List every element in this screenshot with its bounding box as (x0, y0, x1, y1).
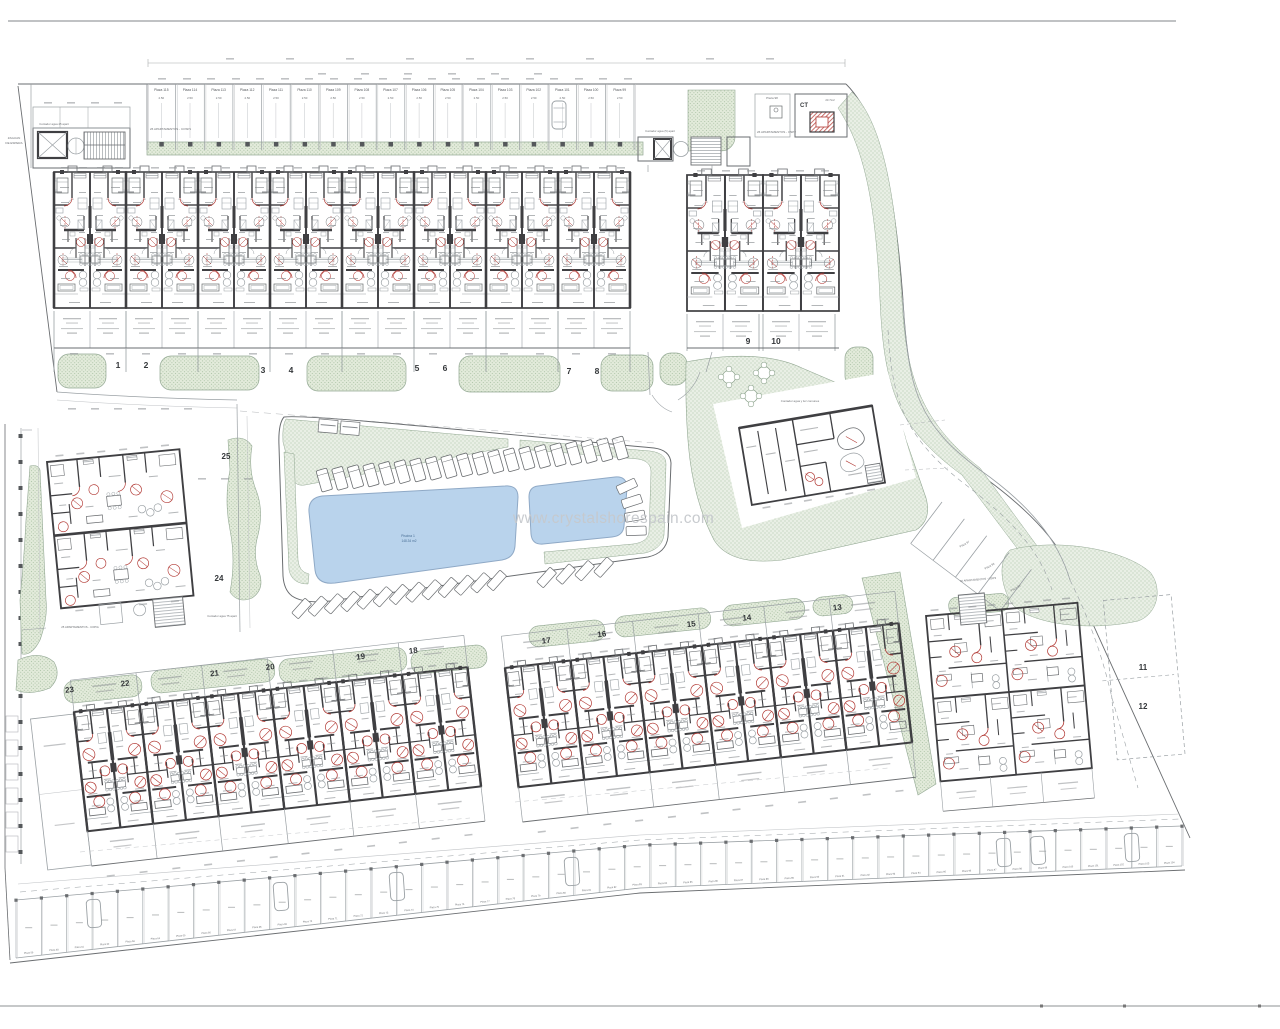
svg-text:Plaza 108: Plaza 108 (355, 88, 370, 92)
svg-text:2.50: 2.50 (302, 96, 308, 100)
svg-text:ZAGUAN: ZAGUAN (8, 136, 21, 140)
svg-text:Plaza 102: Plaza 102 (526, 88, 541, 92)
svg-text:3: 3 (261, 365, 266, 375)
svg-text:CT: CT (800, 103, 808, 109)
svg-text:22: 22 (120, 678, 130, 688)
svg-text:Plaza 66: Plaza 66 (201, 931, 211, 935)
svg-text:17: 17 (541, 636, 551, 646)
svg-text:Plaza 73: Plaza 73 (379, 911, 389, 915)
svg-text:2.50: 2.50 (359, 96, 365, 100)
svg-text:Plaza 76: Plaza 76 (455, 903, 465, 907)
svg-text:Plaza 93: Plaza 93 (886, 872, 896, 876)
svg-text:Plaza 70: Plaza 70 (303, 920, 313, 924)
svg-text:Plaza 78: Plaza 78 (506, 897, 516, 901)
svg-text:Plaza 111: Plaza 111 (269, 88, 283, 92)
svg-text:Plaza 87: Plaza 87 (734, 879, 744, 883)
svg-text:2.50: 2.50 (502, 96, 508, 100)
svg-text:14: 14 (742, 613, 752, 623)
svg-text:Plaza 59: Plaza 59 (24, 951, 34, 955)
svg-text:Plaza 107: Plaza 107 (383, 88, 398, 92)
svg-text:6: 6 (443, 363, 448, 373)
svg-text:Plaza 100: Plaza 100 (584, 88, 599, 92)
svg-text:Plaza 89: Plaza 89 (784, 877, 794, 881)
svg-text:Plaza 101: Plaza 101 (1088, 864, 1099, 868)
svg-text:Plaza 71: Plaza 71 (328, 917, 338, 921)
svg-text:Plaza 67: Plaza 67 (227, 928, 237, 932)
svg-text:Contador agua (5) apart: Contador agua (5) apart (645, 129, 675, 133)
svg-text:4: 4 (289, 365, 294, 375)
svg-text:Plaza 105: Plaza 105 (440, 88, 455, 92)
svg-text:Plaza 99: Plaza 99 (1038, 866, 1048, 870)
svg-text:Plaza 99: Plaza 99 (613, 88, 626, 92)
svg-text:25 APARTAMENTOS - COPIA: 25 APARTAMENTOS - COPIA (61, 625, 99, 629)
svg-text:Plaza 113: Plaza 113 (211, 88, 226, 92)
svg-text:Plaza 88: Plaza 88 (759, 878, 769, 882)
svg-text:2.50: 2.50 (445, 96, 451, 100)
svg-text:11: 11 (1139, 663, 1148, 672)
svg-text:Plaza 101: Plaza 101 (555, 88, 570, 92)
svg-text:Plaza 110: Plaza 110 (297, 88, 312, 92)
svg-text:Plaza 100: Plaza 100 (1063, 865, 1074, 869)
svg-text:DE ESPERA: DE ESPERA (5, 141, 22, 145)
svg-text:12: 12 (1139, 702, 1148, 711)
svg-text:Plaza 75: Plaza 75 (430, 906, 440, 910)
svg-text:Plaza 96: Plaza 96 (984, 562, 996, 571)
svg-text:Plaza 69: Plaza 69 (277, 923, 287, 927)
svg-text:23.7m2: 23.7m2 (825, 98, 835, 102)
svg-text:Contador agua 25 apart: Contador agua 25 apart (39, 122, 69, 126)
svg-text:2.50: 2.50 (474, 96, 480, 100)
svg-text:Plaza 114: Plaza 114 (183, 88, 198, 92)
svg-text:Plaza 106: Plaza 106 (412, 88, 427, 92)
svg-text:2.50: 2.50 (187, 96, 193, 100)
svg-text:Plaza 81: Plaza 81 (582, 889, 592, 893)
svg-text:26 APARTAMENTOS - OSP2: 26 APARTAMENTOS - OSP2 (757, 130, 796, 134)
svg-text:8: 8 (595, 366, 600, 376)
svg-text:2.50: 2.50 (588, 96, 594, 100)
svg-text:40 APARTAMENTOS - OSP3: 40 APARTAMENTOS - OSP3 (960, 576, 997, 583)
svg-text:Plaza 77: Plaza 77 (480, 900, 490, 904)
svg-text:Plaza 61: Plaza 61 (75, 946, 85, 950)
svg-text:26 APARTAMENTOS - COSP1: 26 APARTAMENTOS - COSP1 (150, 127, 191, 131)
svg-text:Plaza 82: Plaza 82 (607, 886, 617, 890)
svg-text:2.50: 2.50 (531, 96, 537, 100)
svg-text:16: 16 (597, 629, 607, 639)
svg-text:Plaza 85: Plaza 85 (683, 881, 693, 885)
svg-text:Plaza 65: Plaza 65 (176, 934, 186, 938)
svg-text:9: 9 (746, 336, 751, 346)
svg-text:www.crystalshorespain.com: www.crystalshorespain.com (512, 510, 714, 527)
svg-text:18: 18 (408, 646, 418, 656)
svg-text:2: 2 (144, 360, 149, 370)
svg-text:21: 21 (210, 668, 220, 678)
svg-text:Plaza 64: Plaza 64 (151, 937, 161, 941)
svg-text:Plaza 60: Plaza 60 (49, 948, 59, 952)
svg-text:Plaza 63: Plaza 63 (125, 940, 135, 944)
svg-text:Plaza 83: Plaza 83 (632, 883, 642, 887)
svg-text:13: 13 (832, 602, 842, 612)
svg-text:Plaza 96: Plaza 96 (962, 869, 972, 873)
svg-text:Piscina 1: Piscina 1 (401, 534, 415, 538)
svg-text:24: 24 (215, 574, 224, 583)
svg-text:Plaza 68: Plaza 68 (252, 926, 262, 930)
svg-text:19: 19 (356, 652, 366, 662)
svg-text:Plaza 104: Plaza 104 (469, 88, 484, 92)
svg-text:Contador agua 75 apart: Contador agua 75 apart (207, 614, 237, 618)
svg-text:Contador agua y luz comunes: Contador agua y luz comunes (781, 399, 820, 403)
svg-text:Plaza 97: Plaza 97 (987, 868, 997, 872)
svg-text:2.50: 2.50 (330, 96, 336, 100)
svg-text:2.50: 2.50 (617, 96, 623, 100)
svg-text:2.50: 2.50 (388, 96, 394, 100)
svg-text:Plaza 103: Plaza 103 (1139, 862, 1150, 866)
svg-text:7: 7 (567, 366, 572, 376)
svg-text:2.50: 2.50 (416, 96, 422, 100)
svg-text:Plaza 102: Plaza 102 (1113, 863, 1124, 867)
svg-text:2.50: 2.50 (273, 96, 279, 100)
svg-text:Plaza 92: Plaza 92 (860, 873, 870, 877)
svg-text:10: 10 (771, 336, 781, 346)
svg-text:5: 5 (415, 363, 420, 373)
svg-text:Plaza 103: Plaza 103 (498, 88, 513, 92)
svg-text:2.50: 2.50 (216, 96, 222, 100)
svg-text:20: 20 (265, 662, 275, 672)
svg-text:2.50: 2.50 (244, 96, 250, 100)
svg-text:Plaza 72: Plaza 72 (354, 914, 364, 918)
svg-text:Plaza 98: Plaza 98 (766, 96, 778, 100)
svg-text:Plaza 97: Plaza 97 (959, 540, 971, 549)
svg-text:2.50: 2.50 (159, 96, 165, 100)
svg-text:Plaza 84: Plaza 84 (658, 882, 668, 886)
svg-text:Plaza 98: Plaza 98 (1013, 867, 1023, 871)
svg-text:2.50: 2.50 (560, 96, 566, 100)
svg-text:Plaza 80: Plaza 80 (556, 891, 566, 895)
svg-text:Plaza 74: Plaza 74 (404, 909, 414, 913)
svg-text:Plaza 90: Plaza 90 (810, 876, 820, 880)
svg-text:Plaza 115: Plaza 115 (154, 88, 169, 92)
svg-text:Plaza 95: Plaza 95 (936, 870, 946, 874)
svg-text:Plaza 94: Plaza 94 (911, 871, 921, 875)
svg-text:1: 1 (116, 360, 121, 370)
svg-text:Plaza 62: Plaza 62 (100, 943, 110, 947)
svg-text:Plaza 112: Plaza 112 (240, 88, 255, 92)
svg-text:148.34 m2: 148.34 m2 (401, 539, 416, 543)
svg-text:Plaza 109: Plaza 109 (326, 88, 341, 92)
svg-text:Plaza 79: Plaza 79 (531, 894, 541, 898)
svg-text:23: 23 (65, 685, 75, 695)
svg-text:25: 25 (222, 452, 231, 461)
svg-text:Plaza 86: Plaza 86 (708, 880, 718, 884)
svg-text:15: 15 (686, 619, 696, 629)
svg-text:Plaza 104: Plaza 104 (1164, 861, 1175, 865)
svg-text:Plaza 91: Plaza 91 (835, 875, 845, 879)
